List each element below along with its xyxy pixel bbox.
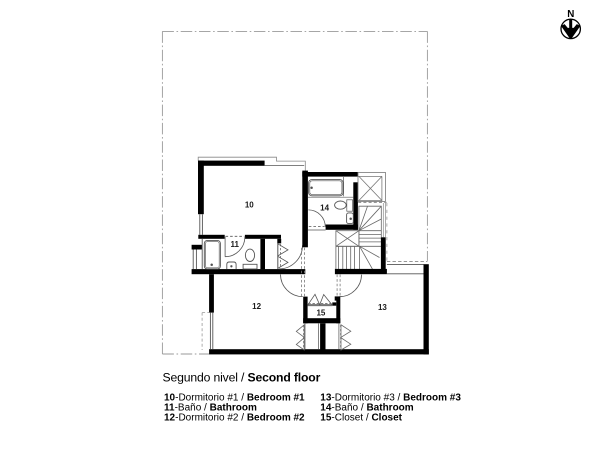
svg-text:Segundo nivel / Second floor: Segundo nivel / Second floor (163, 371, 321, 385)
svg-text:14: 14 (320, 203, 329, 212)
svg-text:11: 11 (230, 240, 239, 249)
svg-text:12: 12 (252, 302, 261, 311)
svg-text:15: 15 (316, 308, 325, 317)
svg-text:13: 13 (378, 303, 387, 312)
svg-text:10: 10 (245, 201, 254, 210)
svg-text:15-Closet / Closet: 15-Closet / Closet (320, 412, 402, 423)
svg-text:N: N (567, 9, 574, 20)
svg-text:12-Dormitorio #2 / Bedroom #2: 12-Dormitorio #2 / Bedroom #2 (164, 412, 305, 423)
